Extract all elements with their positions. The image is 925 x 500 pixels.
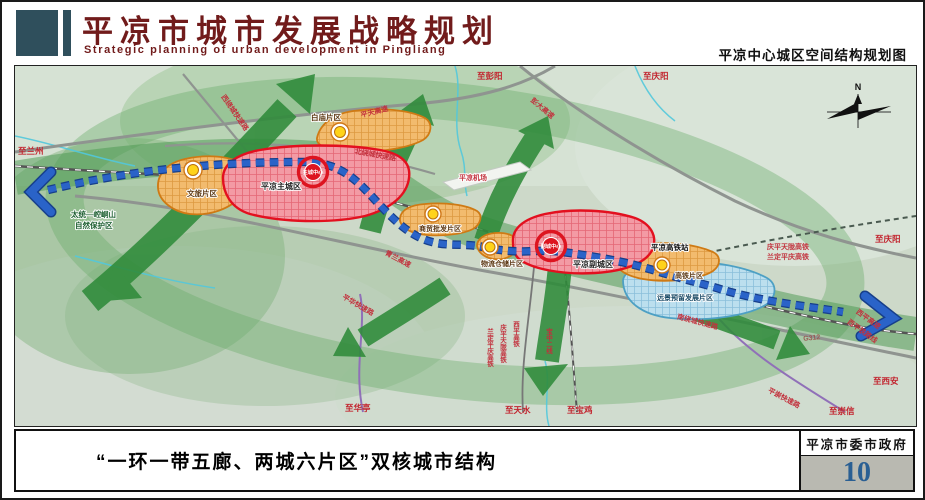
label-dir-baoji: 至宝鸡 <box>567 405 593 415</box>
label-yuanjing: 远景预留发展片区 <box>657 293 713 302</box>
footer-bar: “一环一带五廊、两城六片区”双核城市结构 平凉市委市政府 10 <box>14 429 915 492</box>
sub-core-label: 副城中心 <box>541 242 563 250</box>
label-dir-pengyang: 至彭阳 <box>477 71 503 81</box>
agency-label: 平凉市委市政府 <box>801 431 913 456</box>
structure-caption: “一环一带五廊、两城六片区”双核城市结构 <box>96 431 497 490</box>
label-dir-qingyang-top: 至庆阳 <box>643 71 669 81</box>
label-dir-lanzhou: 至兰州 <box>18 146 44 156</box>
label-dir-chongxin: 至崇信 <box>829 406 855 416</box>
label-airport: 平凉机场 <box>459 173 487 182</box>
label-dir-xian: 至西安 <box>873 376 899 386</box>
page-number: 10 <box>801 456 913 490</box>
label-dir-qingyang-right: 至庆阳 <box>875 234 901 244</box>
main-core-label: 主城中心 <box>303 168 325 176</box>
label-rail-ne-1: 庆平天陇高铁 <box>766 242 809 251</box>
label-reserve-1: 太统—崆峒山 <box>71 209 116 219</box>
slide: 平凉市城市发展战略规划 Strategic planning of urban … <box>0 0 925 500</box>
label-hsr-station: 平凉高铁站 <box>651 242 689 252</box>
planning-map: 主城中心 副城中心 白庙片区 文旅片区 平凉主城区 商贸批发片区 物流仓储片区 … <box>14 65 917 427</box>
label-fucheng: 平凉副城区 <box>573 259 613 269</box>
header: 平凉市城市发展战略规划 Strategic planning of urban … <box>2 2 923 64</box>
map-caption: 平凉中心城区空间结构规划图 <box>719 44 908 64</box>
page-subtitle-en: Strategic planning of urban development … <box>84 44 447 56</box>
label-dir-huating: 至华亭 <box>345 403 371 413</box>
footer-right-box: 平凉市委市政府 10 <box>799 431 913 490</box>
label-reserve-2: 自然保护区 <box>75 220 113 230</box>
label-wuliu: 物流仓储片区 <box>481 259 523 268</box>
label-baimiao: 白庙片区 <box>311 112 341 122</box>
label-gaotie: 高铁片区 <box>675 271 703 280</box>
header-decor-block <box>16 10 58 56</box>
label-shangmao: 商贸批发片区 <box>419 224 461 233</box>
header-decor-bar <box>63 10 71 56</box>
label-dir-tianshui: 至天水 <box>505 405 531 415</box>
label-rail-ne-2: 兰定平庆高铁 <box>767 252 809 261</box>
label-zhucheng: 平凉主城区 <box>261 181 301 191</box>
label-wenlv: 文旅片区 <box>187 188 217 198</box>
compass-n-label: N <box>855 82 862 92</box>
